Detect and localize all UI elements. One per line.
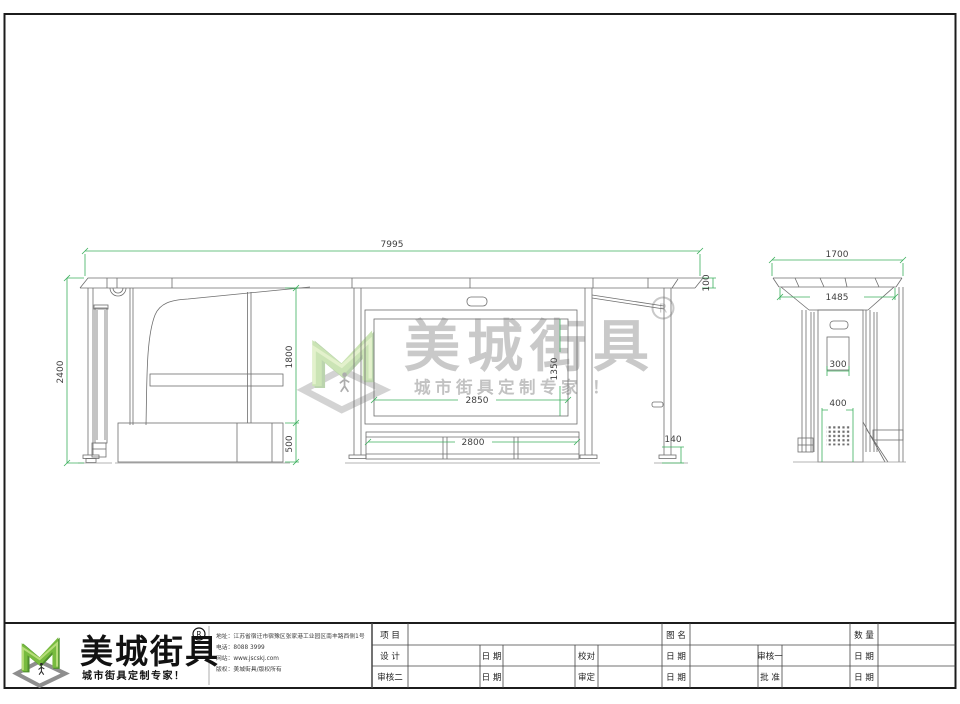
brand-tagline: 城市街具定制专家！ [82, 669, 186, 682]
drawing-sheet: 美城街具 R 城市街具定制专家 ！ [0, 0, 960, 704]
brand-registered: R [196, 630, 201, 639]
dim-front-total-height: 2400 [56, 360, 66, 383]
cell-project-value [408, 623, 662, 645]
dim-bench-width: 2800 [462, 438, 485, 448]
dim-front-clear-height: 1800 [285, 345, 295, 368]
field-date-1: 日 期 [482, 652, 502, 662]
cad-canvas: 美城街具 R 城市街具定制专家 ！ [0, 0, 960, 704]
company-address: 地址：江苏省宿迁市宿豫区张家港工业园区南丰路西侧1号 [216, 632, 365, 640]
watermark-tagline: 城市街具定制专家 ！ [414, 377, 613, 397]
field-proofread: 校对 [578, 651, 596, 662]
dim-side-roof-width: 1700 [826, 250, 849, 260]
cell-quantity-value [878, 623, 955, 645]
dim-side-body-width: 1485 [826, 293, 849, 303]
dim-side-panel-width: 300 [829, 360, 846, 370]
field-date-6: 日 期 [854, 673, 874, 683]
company-website: 网站：www.jscskj.com [216, 654, 279, 662]
dim-front-total-width: 7995 [381, 240, 404, 250]
cell-drawing-name-value [690, 623, 850, 645]
dim-front-base-height: 500 [285, 435, 295, 452]
company-copyright: 版权：美城街具/版权所有 [216, 665, 282, 673]
dim-panel-height: 1350 [550, 357, 560, 380]
company-phone: 电话：8088 3999 [216, 643, 265, 651]
field-date-2: 日 期 [666, 652, 686, 662]
field-reviewer1: 审核一 [757, 651, 783, 662]
field-date-4: 日 期 [482, 673, 502, 683]
watermark-brand: 美城街具 [404, 315, 656, 380]
field-ratify: 批 准 [760, 672, 780, 683]
field-date-3: 日 期 [854, 652, 874, 662]
side-speaker-grille [826, 426, 851, 446]
field-quantity: 数 量 [854, 630, 874, 641]
field-drawing-name: 图 名 [666, 630, 686, 641]
dim-post-base: 140 [664, 435, 681, 445]
field-approve: 审定 [578, 672, 596, 683]
dim-side-grille-width: 400 [829, 399, 846, 409]
field-design: 设 计 [380, 651, 400, 662]
field-reviewer2: 审核二 [377, 672, 403, 683]
dim-roof-thickness: 100 [702, 274, 712, 291]
field-date-5: 日 期 [666, 673, 686, 683]
dim-panel-width: 2850 [466, 396, 489, 406]
field-project: 项 目 [380, 631, 400, 641]
